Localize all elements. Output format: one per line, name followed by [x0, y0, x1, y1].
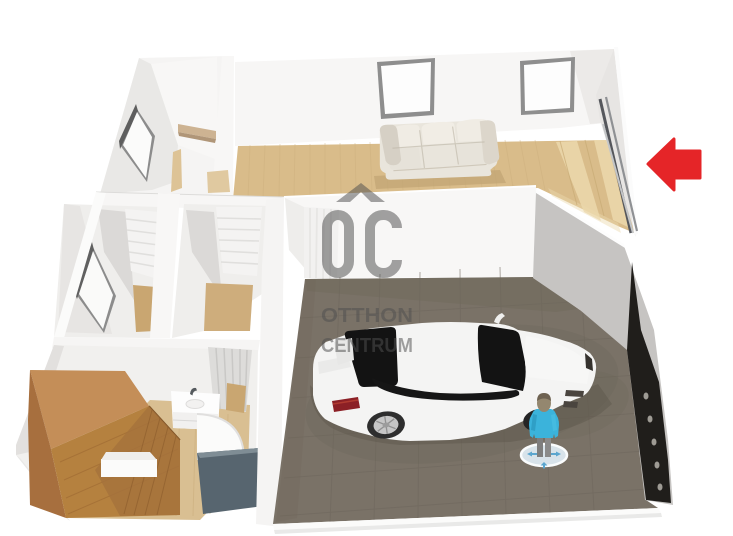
svg-text:OTTHON: OTTHON: [321, 305, 413, 327]
svg-text:CENTRUM: CENTRUM: [321, 335, 413, 357]
